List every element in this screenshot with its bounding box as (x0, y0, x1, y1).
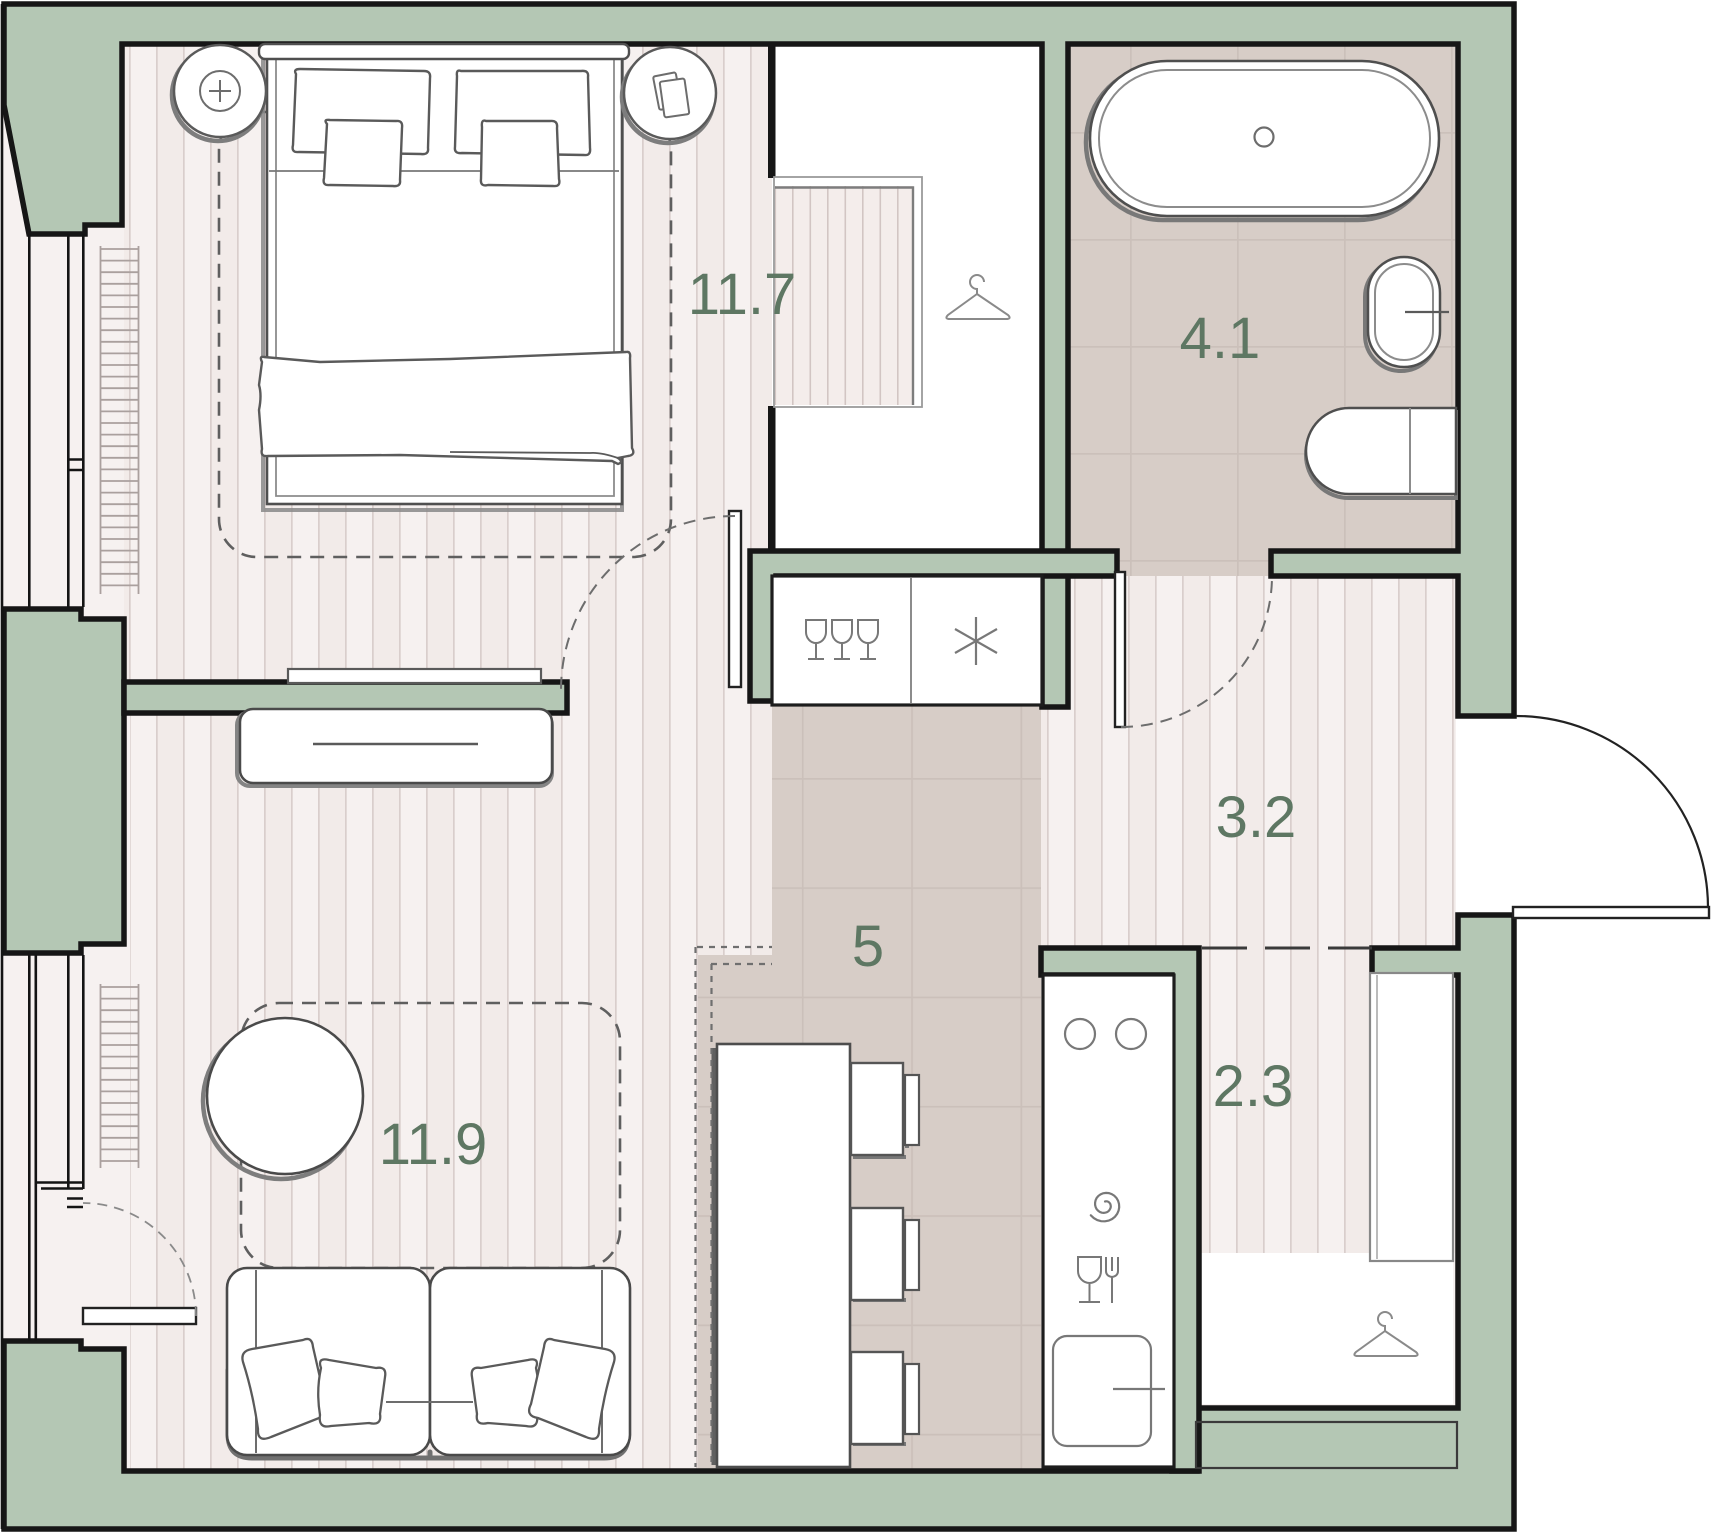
svg-text:3.2: 3.2 (1216, 785, 1297, 850)
svg-text:4.1: 4.1 (1180, 306, 1261, 371)
svg-text:11.9: 11.9 (379, 1112, 488, 1177)
svg-text:5: 5 (852, 914, 884, 979)
svg-text:11.7: 11.7 (688, 262, 797, 327)
svg-text:2.3: 2.3 (1213, 1054, 1294, 1119)
